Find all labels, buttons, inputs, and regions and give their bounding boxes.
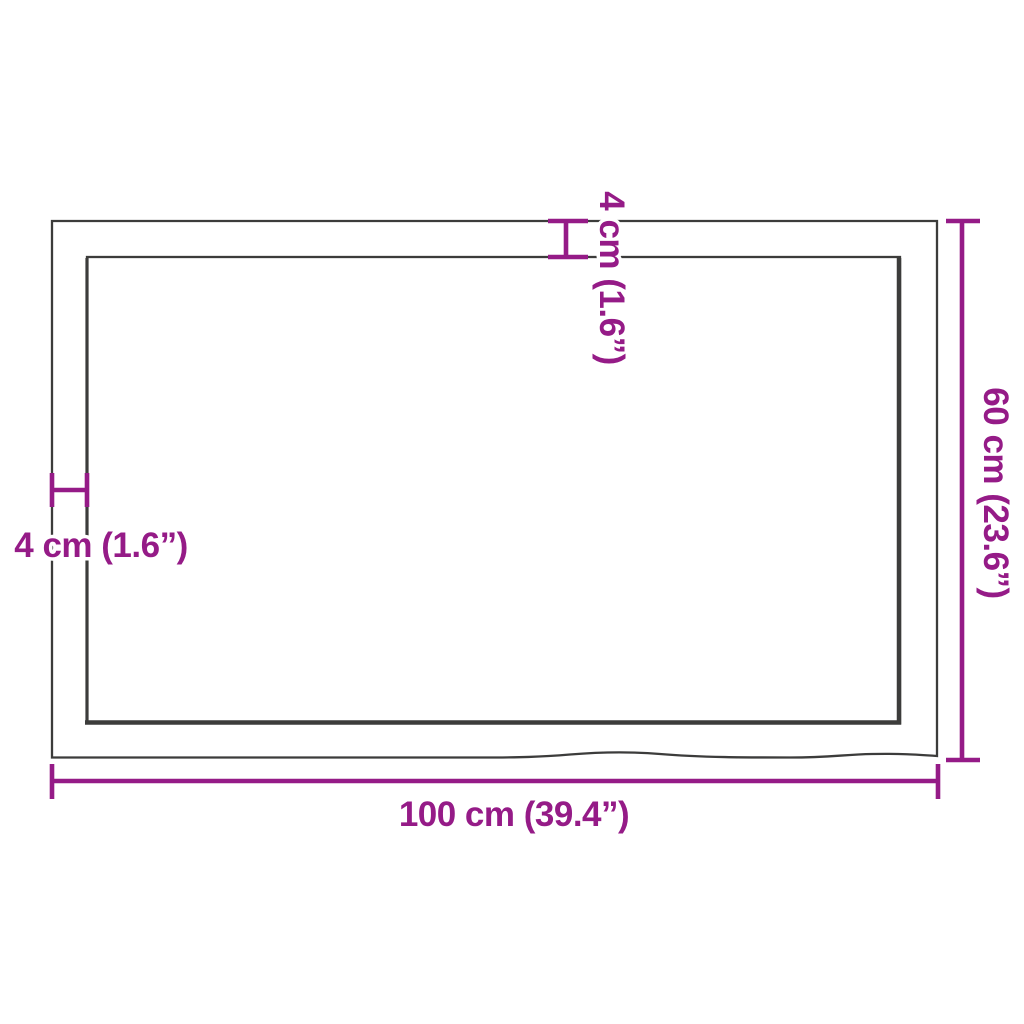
thickness-left-dimension-label: 4 cm (1.6”) — [14, 526, 187, 565]
tabletop-outer-edge — [52, 221, 937, 758]
tabletop-outline — [52, 221, 937, 758]
dimension-lines — [52, 221, 980, 799]
width-dimension-line — [52, 764, 938, 799]
diagram-canvas: 100 cm (39.4”) 60 cm (23.6”) 4 cm (1.6”)… — [0, 0, 1024, 1024]
tabletop-inner-edge — [87, 257, 900, 723]
tabletop-dimension-diagram: 100 cm (39.4”) 60 cm (23.6”) 4 cm (1.6”)… — [0, 0, 1024, 1024]
width-dimension-label: 100 cm (39.4”) — [399, 795, 629, 834]
tabletop-inner-edge-shading-bottom-right — [85, 258, 899, 723]
thickness-top-dimension-marker — [548, 221, 588, 257]
height-dimension-label: 60 cm (23.6”) — [976, 387, 1015, 598]
dimension-labels: 100 cm (39.4”) 60 cm (23.6”) 4 cm (1.6”)… — [14, 191, 1015, 834]
thickness-left-dimension-marker — [52, 473, 87, 507]
thickness-top-dimension-label: 4 cm (1.6”) — [592, 191, 631, 364]
height-dimension-line — [946, 221, 980, 760]
